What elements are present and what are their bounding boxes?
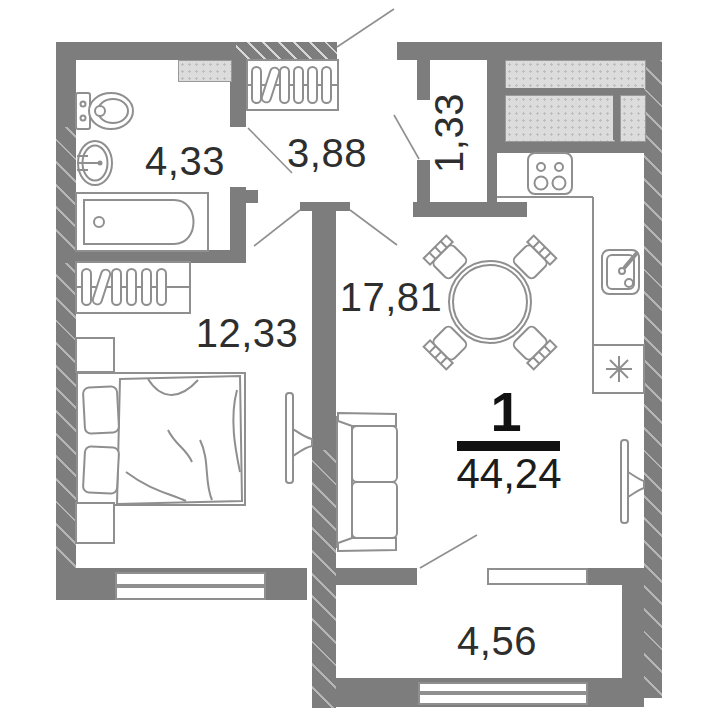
toilet-icon — [76, 93, 133, 129]
hallway-area-label: 3,88 — [287, 131, 367, 176]
apartment-total-area: 44,24 — [456, 450, 561, 498]
kitchen-sink-icon — [602, 250, 639, 294]
closet-door-swing-line — [394, 115, 419, 159]
bathtub-icon — [76, 193, 208, 251]
bathroom-area-label: 4,33 — [145, 139, 225, 184]
nightstand-top — [76, 338, 114, 372]
bedroom-area-label: 12,33 — [196, 311, 299, 356]
bed-icon — [77, 373, 245, 505]
entrance-door-swing-line — [337, 9, 394, 47]
bedroom-radiator-icon — [286, 393, 312, 483]
living-opening-line — [350, 210, 397, 245]
fixtures-layer — [0, 0, 720, 720]
bedroom-opening-line — [254, 210, 300, 246]
apartment-rooms-count: 1 — [490, 379, 521, 444]
hallway-wardrobe-icon — [247, 60, 338, 110]
bathroom-sink-icon — [77, 141, 112, 185]
balcony-area-label: 4,56 — [457, 619, 537, 664]
floor-plan: 4,33 3,88 1,33 12,33 17,81 4,56 1 44,24 — [0, 0, 720, 720]
bedroom-wardrobe-icon — [76, 262, 190, 313]
living-kitchen-area-label: 17,81 — [340, 275, 443, 320]
closet-area-label: 1,33 — [427, 93, 472, 173]
fridge-icon — [593, 345, 644, 393]
balcony-door-swing-line — [420, 535, 477, 568]
living-radiator-icon — [621, 440, 644, 523]
dining-table-icon — [449, 261, 531, 343]
sofa-icon — [337, 413, 397, 551]
stove-icon — [528, 153, 572, 194]
nightstand-bottom — [76, 503, 114, 543]
bathroom-door-swing-line — [248, 128, 292, 173]
